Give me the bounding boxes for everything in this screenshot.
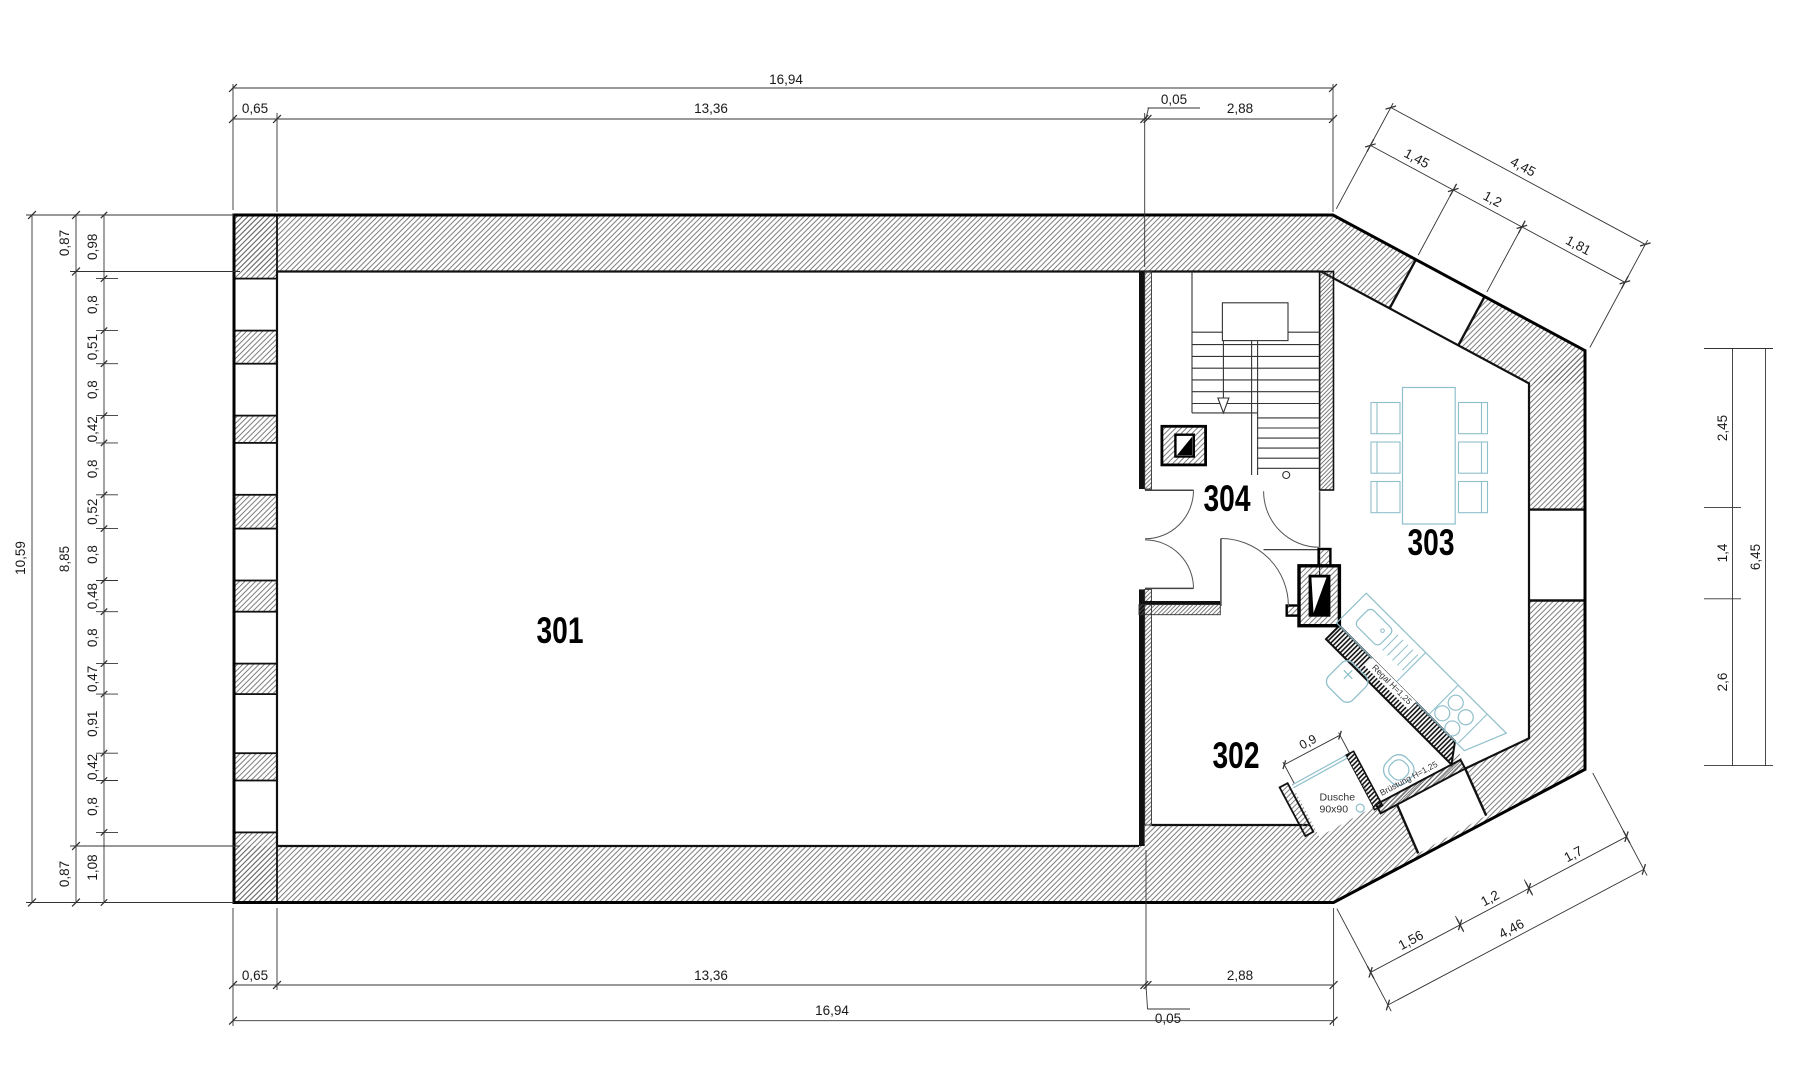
svg-text:13,36: 13,36 bbox=[694, 101, 728, 116]
svg-text:13,36: 13,36 bbox=[694, 968, 728, 983]
svg-text:0,8: 0,8 bbox=[85, 295, 100, 314]
svg-text:16,94: 16,94 bbox=[769, 72, 803, 87]
svg-text:Dusche: Dusche bbox=[1320, 792, 1356, 804]
svg-text:2,88: 2,88 bbox=[1227, 101, 1253, 116]
svg-text:303: 303 bbox=[1408, 522, 1455, 563]
svg-text:0,87: 0,87 bbox=[57, 230, 72, 256]
svg-text:0,42: 0,42 bbox=[85, 754, 100, 780]
svg-text:0,47: 0,47 bbox=[85, 666, 100, 692]
svg-text:0,51: 0,51 bbox=[85, 334, 100, 360]
svg-text:0,05: 0,05 bbox=[1155, 1011, 1181, 1026]
svg-text:0,05: 0,05 bbox=[1161, 92, 1187, 107]
svg-text:0,65: 0,65 bbox=[242, 101, 268, 116]
svg-text:301: 301 bbox=[537, 610, 584, 651]
svg-text:16,94: 16,94 bbox=[815, 1003, 849, 1018]
svg-text:6,45: 6,45 bbox=[1748, 544, 1763, 570]
svg-text:0,8: 0,8 bbox=[85, 545, 100, 564]
svg-text:1,08: 1,08 bbox=[85, 854, 100, 880]
svg-text:8,85: 8,85 bbox=[57, 546, 72, 572]
svg-text:304: 304 bbox=[1204, 478, 1251, 519]
svg-text:0,87: 0,87 bbox=[57, 861, 72, 887]
svg-text:302: 302 bbox=[1213, 735, 1260, 776]
svg-text:0,98: 0,98 bbox=[85, 234, 100, 260]
svg-text:2,88: 2,88 bbox=[1227, 968, 1253, 983]
svg-text:0,8: 0,8 bbox=[85, 628, 100, 647]
svg-text:0,91: 0,91 bbox=[85, 711, 100, 737]
svg-text:2,6: 2,6 bbox=[1715, 673, 1730, 692]
svg-text:90x90: 90x90 bbox=[1320, 804, 1349, 816]
svg-text:0,8: 0,8 bbox=[85, 460, 100, 479]
svg-text:0,8: 0,8 bbox=[85, 797, 100, 816]
svg-text:0,8: 0,8 bbox=[85, 380, 100, 399]
svg-text:0,65: 0,65 bbox=[242, 968, 268, 983]
svg-text:0,42: 0,42 bbox=[85, 416, 100, 442]
svg-text:0,48: 0,48 bbox=[85, 583, 100, 609]
svg-text:1,4: 1,4 bbox=[1715, 543, 1730, 562]
svg-text:10,59: 10,59 bbox=[13, 541, 28, 575]
svg-text:2,45: 2,45 bbox=[1715, 415, 1730, 441]
svg-text:0,52: 0,52 bbox=[85, 499, 100, 525]
